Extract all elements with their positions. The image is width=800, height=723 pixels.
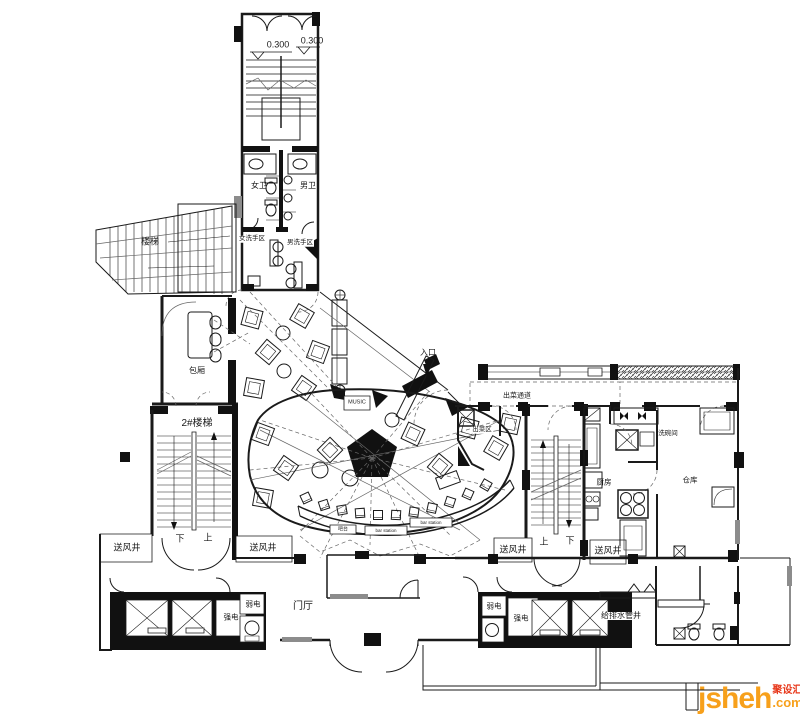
label-food-pass: 出菜通道 bbox=[502, 393, 532, 400]
watermark-brand: jsheh bbox=[698, 684, 771, 714]
label-air-shaft-3: 送风井 bbox=[498, 546, 527, 555]
toilet-block bbox=[226, 150, 318, 312]
label-bar-station-2: bar station bbox=[420, 521, 441, 526]
label-weak-elec-left: 弱电 bbox=[245, 600, 262, 608]
kitchen-wing bbox=[455, 364, 744, 564]
elevator-bank-left bbox=[110, 578, 266, 650]
label-womens-wash: 女洗手区 bbox=[238, 236, 266, 243]
label-storage: 仓库 bbox=[683, 476, 698, 484]
label-elev-mark-left: 0.300 bbox=[267, 41, 290, 50]
label-dishwash-room: 洗碗间 bbox=[658, 431, 678, 438]
label-stair-2: 2#楼梯 bbox=[181, 419, 212, 429]
bottom-band bbox=[110, 546, 792, 710]
floor-plan: 0.300 0.300 女卫 男卫 女洗手区 男洗手区 楼梯 包厢 2#楼梯 下… bbox=[0, 0, 800, 723]
label-mens-wc: 男卫 bbox=[300, 182, 316, 190]
label-air-shaft-2: 送风井 bbox=[248, 544, 277, 553]
label-stair-mid-down: 下 bbox=[565, 537, 574, 546]
label-stair2-up: 上 bbox=[203, 534, 212, 543]
label-elev-mark-right: 0.300 bbox=[301, 37, 324, 46]
label-womens-wc: 女卫 bbox=[251, 182, 267, 190]
label-music-zone: MUSIC bbox=[348, 400, 366, 406]
corridor-seating bbox=[240, 290, 347, 401]
label-plumbing-shaft: 给排水管井 bbox=[600, 612, 642, 620]
label-weak-elec-right: 弱电 bbox=[486, 602, 503, 610]
private-room bbox=[152, 296, 250, 404]
label-food-area: 出菜区 bbox=[471, 427, 493, 434]
lobby-room bbox=[327, 551, 420, 599]
label-stair2-down: 下 bbox=[175, 535, 184, 544]
label-stair-mid-up: 上 bbox=[539, 538, 548, 547]
label-strong-elec-left: 强电 bbox=[223, 613, 240, 621]
label-kitchen: 厨房 bbox=[597, 478, 612, 486]
label-lobby: 门厅 bbox=[293, 602, 313, 612]
label-strong-elec-right: 强电 bbox=[513, 614, 530, 622]
left-stairs bbox=[96, 204, 236, 294]
label-mens-wash: 男洗手区 bbox=[286, 240, 314, 247]
floor-plan-drawing bbox=[0, 0, 800, 723]
label-air-shaft-1: 送风井 bbox=[112, 544, 141, 553]
label-bar-station-1: bar station bbox=[375, 529, 396, 534]
watermark-suffix: .com bbox=[772, 696, 800, 709]
label-entrance: 入口 bbox=[420, 349, 436, 357]
label-stairs-left: 楼梯 bbox=[141, 238, 159, 247]
label-air-shaft-4: 送风井 bbox=[593, 547, 622, 556]
label-bar-counter: 吧台 bbox=[338, 528, 348, 533]
watermark-logo: jsheh 聚设汇 .com bbox=[698, 684, 800, 714]
label-private-room: 包厢 bbox=[189, 367, 205, 375]
